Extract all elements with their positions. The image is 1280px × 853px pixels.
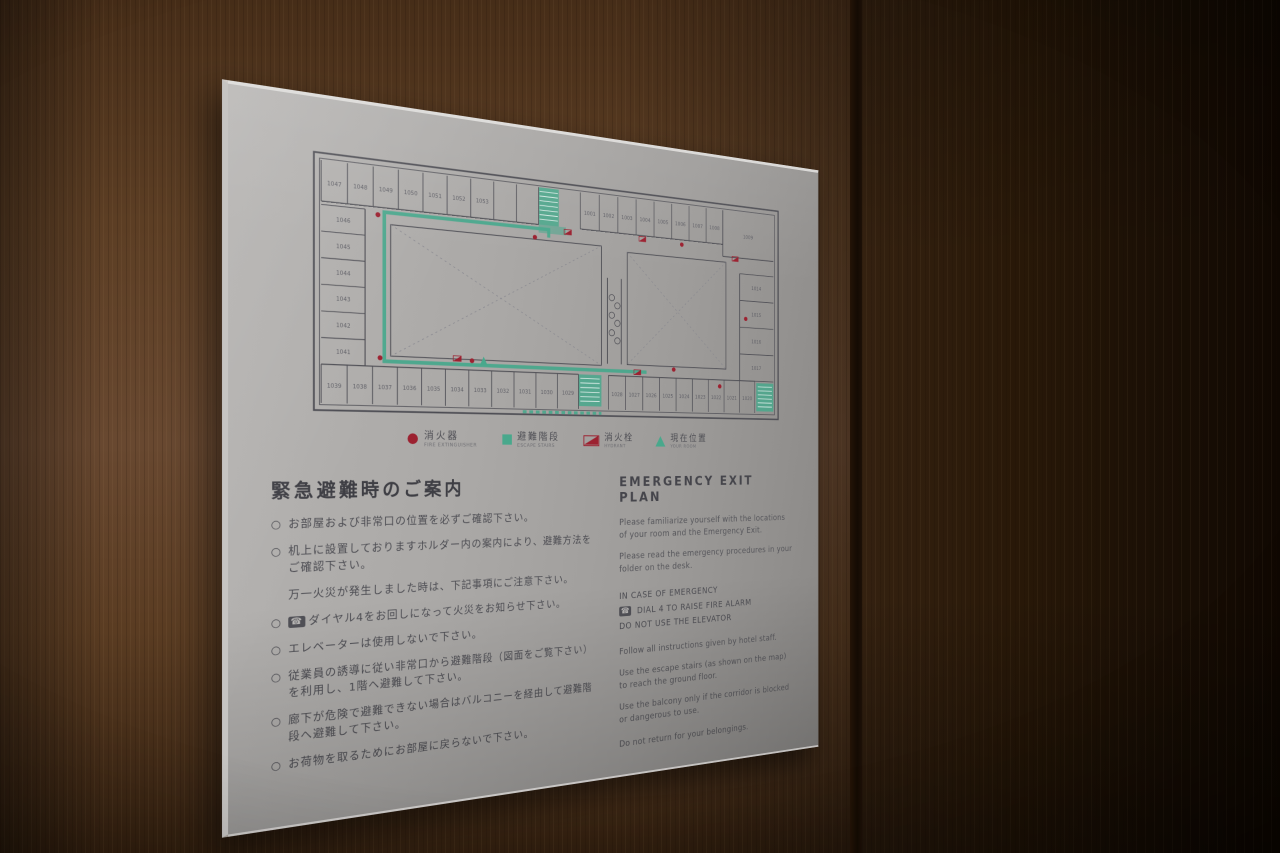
svg-text:1002: 1002: [603, 213, 614, 220]
phone-icon: ☎: [288, 616, 305, 628]
legend-label-en: FIRE EXTINGUISHER: [424, 443, 477, 449]
photo-of-emergency-exit-sign: 1047104810491050105110521053100110021003…: [0, 0, 1280, 853]
legend-label-jp: 避難階段: [517, 432, 560, 443]
wooden-wall-right-panel: [862, 0, 1280, 853]
japanese-instructions: 緊急避難時のご案内 ○お部屋および非常口の位置を必ずご確認下さい。 ○机上に設置…: [271, 473, 597, 812]
svg-text:1051: 1051: [428, 193, 441, 201]
svg-text:1034: 1034: [451, 387, 465, 394]
svg-text:1032: 1032: [497, 389, 510, 395]
phone-icon: ☎: [619, 606, 631, 617]
legend-label-en: HYDRANT: [604, 444, 634, 449]
en-paragraph: Please read the emergency procedures in …: [619, 544, 794, 577]
svg-text:1008: 1008: [709, 225, 720, 232]
svg-text:1022: 1022: [711, 395, 721, 401]
svg-text:1005: 1005: [657, 219, 668, 226]
escape-stairs-icon: [502, 434, 512, 444]
svg-text:1017: 1017: [751, 366, 761, 372]
svg-text:1048: 1048: [353, 184, 368, 192]
svg-text:1027: 1027: [629, 393, 640, 399]
legend-label-en: ESCAPE STAIRS: [517, 444, 560, 449]
svg-text:1021: 1021: [727, 396, 737, 402]
legend-your-room: 現在位置 YOUR ROOM: [656, 434, 708, 450]
svg-text:1026: 1026: [646, 393, 657, 399]
legend-label-en: YOUR ROOM: [670, 445, 707, 450]
legend-hydrant: 消火栓 HYDRANT: [583, 433, 634, 450]
svg-text:1020: 1020: [742, 396, 752, 402]
your-room-icon: [656, 436, 666, 447]
svg-text:1024: 1024: [679, 394, 690, 400]
hydrant-icon: [583, 435, 599, 446]
svg-text:1015: 1015: [751, 313, 761, 319]
svg-text:1045: 1045: [336, 244, 350, 252]
jp-instruction-list: ○お部屋および非常口の位置を必ずご確認下さい。 ○机上に設置しておりますホルダー…: [271, 509, 597, 776]
svg-text:1025: 1025: [662, 394, 673, 400]
floor-plan: 1047104810491050105110521053100110021003…: [312, 150, 779, 421]
svg-text:1009: 1009: [743, 235, 753, 241]
english-instructions: EMERGENCY EXIT PLAN Please familiarize y…: [619, 471, 794, 760]
svg-text:1001: 1001: [584, 211, 596, 218]
svg-text:1036: 1036: [403, 386, 417, 393]
svg-text:1042: 1042: [336, 323, 350, 330]
svg-text:1004: 1004: [640, 217, 652, 224]
svg-text:1007: 1007: [692, 223, 702, 230]
en-paragraph: Please familiarize yourself with the loc…: [619, 512, 794, 542]
svg-text:1050: 1050: [404, 190, 418, 198]
legend-label-jp: 消火器: [424, 431, 477, 442]
legend-escape-stairs: 避難階段 ESCAPE STAIRS: [502, 432, 560, 449]
in-case-of-emergency-block: IN CASE OF EMERGENCY ☎ DIAL 4 TO RAISE F…: [619, 579, 794, 635]
en-heading: EMERGENCY EXIT PLAN: [619, 473, 794, 505]
svg-text:1033: 1033: [474, 388, 487, 394]
jp-heading: 緊急避難時のご案内: [271, 473, 597, 504]
svg-text:1044: 1044: [336, 270, 351, 278]
legend-label-jp: 現在位置: [670, 434, 707, 444]
svg-text:1028: 1028: [611, 392, 623, 398]
svg-text:1006: 1006: [675, 221, 686, 228]
svg-text:1053: 1053: [476, 198, 489, 206]
map-legend: 消火器 FIRE EXTINGUISHER 避難階段 ESCAPE STAIRS…: [408, 431, 818, 450]
svg-text:1031: 1031: [519, 389, 531, 395]
svg-text:1043: 1043: [336, 296, 350, 303]
emergency-exit-plan-sign: 1047104810491050105110521053100110021003…: [222, 79, 819, 838]
svg-text:1035: 1035: [427, 386, 440, 393]
svg-text:1016: 1016: [751, 340, 761, 346]
svg-text:1014: 1014: [751, 286, 761, 292]
svg-text:1041: 1041: [336, 349, 350, 356]
fire-extinguisher-icon: [408, 433, 418, 444]
svg-text:1052: 1052: [452, 195, 465, 203]
svg-text:1047: 1047: [327, 181, 342, 189]
svg-text:1003: 1003: [621, 215, 632, 222]
jp-item: ○机上に設置しておりますホルダー内の案内により、避難方法をご確認下さい。: [271, 533, 597, 579]
floor-plan-drawing: 1047104810491050105110521053100110021003…: [312, 150, 779, 421]
legend-label-jp: 消火栓: [604, 433, 634, 443]
svg-text:1038: 1038: [353, 384, 368, 391]
jp-item: ○お部屋および非常口の位置を必ずご確認下さい。: [271, 509, 597, 534]
wall-panel-seam: [850, 0, 862, 853]
svg-text:1046: 1046: [336, 217, 351, 225]
svg-text:1037: 1037: [378, 385, 392, 392]
svg-text:1030: 1030: [541, 390, 554, 396]
instruction-columns: 緊急避難時のご案内 ○お部屋および非常口の位置を必ずご確認下さい。 ○机上に設置…: [271, 471, 794, 811]
svg-text:1029: 1029: [562, 391, 574, 397]
svg-text:1039: 1039: [327, 383, 342, 390]
svg-text:1023: 1023: [695, 395, 705, 401]
svg-text:1049: 1049: [379, 187, 393, 195]
legend-fire-extinguisher: 消火器 FIRE EXTINGUISHER: [408, 431, 477, 449]
